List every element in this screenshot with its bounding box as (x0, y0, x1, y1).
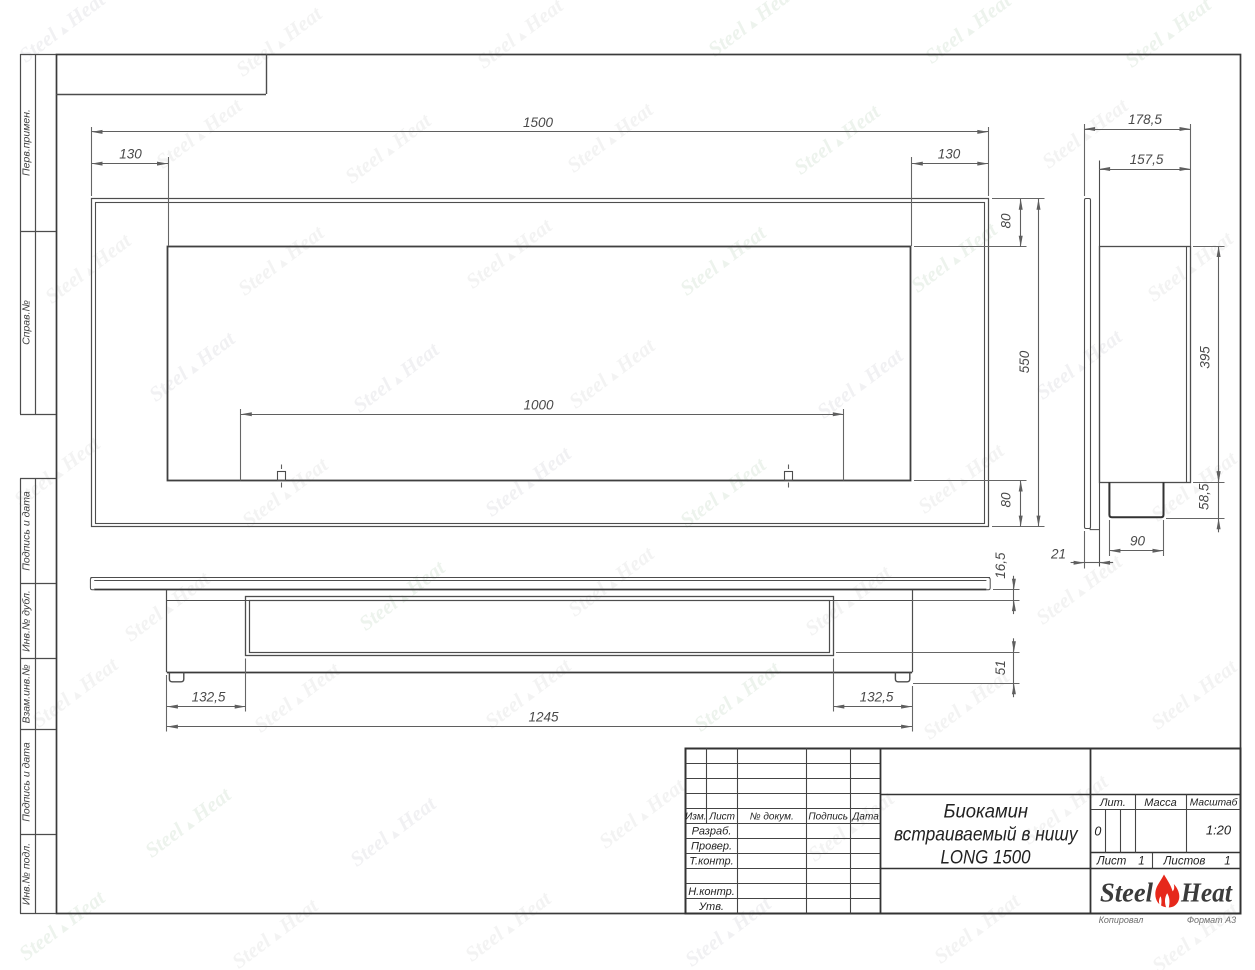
svg-text:Steel▲Heat: Steel▲Heat (675, 220, 771, 301)
svg-text:1: 1 (1138, 856, 1144, 868)
svg-text:Steel▲Heat: Steel▲Heat (144, 326, 240, 407)
svg-text:130: 130 (938, 147, 961, 162)
svg-text:Перв.примен.: Перв.примен. (21, 109, 33, 176)
svg-text:Н.контр.: Н.контр. (688, 886, 735, 898)
svg-text:Т.контр.: Т.контр. (689, 856, 733, 868)
svg-text:Steel▲Heat: Steel▲Heat (564, 333, 660, 414)
svg-text:Steel▲Heat: Steel▲Heat (27, 652, 123, 733)
svg-text:Steel▲Heat: Steel▲Heat (812, 343, 908, 424)
svg-text:Подпись и дата: Подпись и дата (21, 491, 33, 571)
svg-text:0: 0 (1094, 825, 1101, 839)
svg-text:Steel▲Heat: Steel▲Heat (906, 217, 1002, 298)
svg-text:Steel▲Heat: Steel▲Heat (1037, 93, 1133, 174)
svg-text:Steel▲Heat: Steel▲Heat (563, 541, 659, 622)
svg-text:58,5: 58,5 (1197, 483, 1212, 510)
svg-text:1500: 1500 (523, 115, 554, 130)
svg-text:1:20: 1:20 (1206, 823, 1232, 838)
svg-text:Steel▲Heat: Steel▲Heat (348, 337, 444, 418)
svg-text:Лист: Лист (708, 812, 735, 823)
svg-text:Инв.№ дубл.: Инв.№ дубл. (21, 590, 33, 652)
svg-text:Подпись и дата: Подпись и дата (21, 742, 33, 822)
svg-text:Разраб.: Разраб. (692, 826, 732, 838)
svg-text:Steel▲Heat: Steel▲Heat (340, 108, 436, 189)
svg-text:Взам.инв.№: Взам.инв.№ (21, 664, 33, 723)
svg-text:Steel▲Heat: Steel▲Heat (689, 656, 785, 737)
svg-text:Steel▲Heat: Steel▲Heat (472, 0, 568, 73)
svg-text:Steel▲Heat: Steel▲Heat (920, 0, 1016, 68)
svg-text:1000: 1000 (523, 398, 554, 413)
svg-text:Steel▲Heat: Steel▲Heat (14, 0, 110, 67)
svg-text:Лит.: Лит. (1099, 797, 1126, 809)
svg-text:встраиваемый в нишу: встраиваемый в нишу (894, 824, 1079, 846)
svg-text:132,5: 132,5 (860, 690, 894, 705)
svg-text:Steel▲Heat: Steel▲Heat (1120, 0, 1216, 72)
svg-text:Формат А3: Формат А3 (1187, 915, 1236, 925)
svg-text:Steel▲Heat: Steel▲Heat (140, 782, 236, 863)
svg-text:Steel▲Heat: Steel▲Heat (227, 893, 323, 970)
svg-text:Steel▲Heat: Steel▲Heat (237, 452, 333, 533)
svg-text:Провер.: Провер. (691, 841, 732, 853)
svg-text:Steel▲Heat: Steel▲Heat (1031, 549, 1127, 630)
svg-text:Steel▲Heat: Steel▲Heat (1147, 897, 1243, 970)
svg-text:Подпись: Подпись (808, 812, 848, 823)
svg-text:Листов: Листов (1163, 856, 1206, 868)
svg-text:157,5: 157,5 (1130, 152, 1164, 167)
svg-text:Инв.№ подл.: Инв.№ подл. (21, 843, 33, 905)
svg-text:80: 80 (999, 492, 1014, 508)
svg-text:Steel▲Heat: Steel▲Heat (1146, 654, 1242, 735)
svg-text:Steel: Steel (1100, 878, 1153, 908)
svg-text:51: 51 (993, 660, 1008, 675)
svg-text:Steel▲Heat: Steel▲Heat (675, 452, 771, 533)
svg-text:Дата: Дата (851, 812, 879, 823)
svg-text:Steel▲Heat: Steel▲Heat (40, 228, 136, 309)
svg-text:132,5: 132,5 (192, 690, 226, 705)
svg-text:Steel▲Heat: Steel▲Heat (562, 97, 658, 178)
svg-text:Справ.№: Справ.№ (21, 300, 33, 345)
svg-text:LONG 1500: LONG 1500 (941, 847, 1031, 869)
svg-text:Steel▲Heat: Steel▲Heat (1031, 324, 1127, 405)
svg-text:Steel▲Heat: Steel▲Heat (803, 786, 899, 867)
svg-text:1245: 1245 (528, 710, 559, 725)
svg-text:178,5: 178,5 (1128, 112, 1162, 127)
svg-text:90: 90 (1130, 533, 1146, 548)
svg-text:Масштаб: Масштаб (1190, 797, 1239, 809)
svg-text:Steel▲Heat: Steel▲Heat (680, 891, 776, 970)
svg-text:Steel▲Heat: Steel▲Heat (789, 99, 885, 180)
svg-text:Steel▲Heat: Steel▲Heat (929, 888, 1025, 969)
svg-text:Steel▲Heat: Steel▲Heat (703, 0, 799, 61)
svg-text:80: 80 (999, 213, 1014, 229)
svg-text:Steel▲Heat: Steel▲Heat (461, 213, 557, 294)
svg-text:Steel▲Heat: Steel▲Heat (249, 657, 345, 738)
svg-text:Масса: Масса (1144, 797, 1177, 809)
svg-text:Изм.: Изм. (685, 812, 706, 823)
svg-text:395: 395 (1198, 346, 1213, 369)
svg-text:130: 130 (119, 147, 142, 162)
svg-text:№ докум.: № докум. (750, 812, 794, 823)
svg-text:Steel▲Heat: Steel▲Heat (460, 886, 556, 967)
svg-text:1: 1 (1224, 856, 1230, 868)
svg-text:Steel▲Heat: Steel▲Heat (345, 791, 441, 872)
svg-text:Steel▲Heat: Steel▲Heat (151, 93, 247, 174)
svg-text:16,5: 16,5 (993, 552, 1008, 579)
svg-text:Биокамин: Биокамин (944, 801, 1029, 823)
svg-text:Heat: Heat (1180, 878, 1233, 908)
svg-text:Steel▲Heat: Steel▲Heat (913, 438, 1009, 519)
svg-text:Утв.: Утв. (698, 901, 724, 913)
svg-text:550: 550 (1017, 350, 1032, 373)
svg-text:Копировал: Копировал (1099, 915, 1144, 925)
svg-text:Steel▲Heat: Steel▲Heat (231, 1, 327, 82)
svg-text:Steel▲Heat: Steel▲Heat (233, 220, 329, 301)
svg-text:Steel▲Heat: Steel▲Heat (1146, 446, 1242, 527)
svg-text:Steel▲Heat: Steel▲Heat (594, 773, 690, 854)
svg-text:Steel▲Heat: Steel▲Heat (354, 555, 450, 636)
svg-text:Лист: Лист (1096, 856, 1127, 868)
svg-text:21: 21 (1050, 547, 1066, 562)
